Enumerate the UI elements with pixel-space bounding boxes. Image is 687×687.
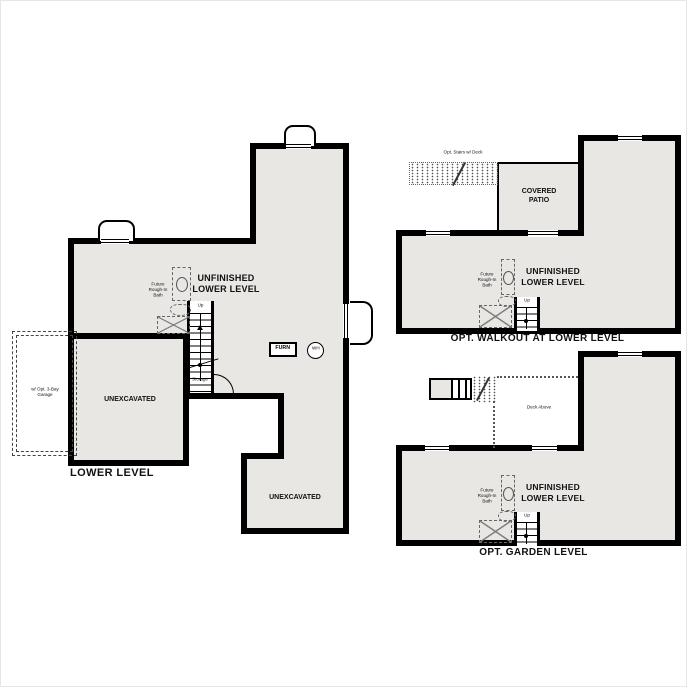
opt-garage-outline: w/ Opt. 3-Bay Garage: [12, 331, 77, 456]
stairs: Up: [514, 512, 540, 546]
deck-outline-dotted: [493, 401, 495, 448]
room-label-unfinished: UNFINISHED LOWER LEVEL: [512, 266, 594, 287]
water-heater: WH: [307, 342, 324, 359]
window: [426, 230, 450, 236]
plan-title-garden: OPT. GARDEN LEVEL: [411, 547, 656, 558]
room-label-unexcavated-lower: UNEXCAVATED: [255, 494, 335, 503]
future-tub-icon: [479, 520, 512, 543]
stair-arrow-icon: [197, 325, 203, 330]
window: [618, 351, 642, 357]
floorplan-sheet: Up Storage Future Rough-In Bath FURN WH …: [0, 0, 687, 687]
covered-patio-label: COVERED PATIO: [513, 188, 565, 205]
deck-above-label: Deck Above: [526, 405, 552, 411]
exterior-wall: [250, 143, 256, 244]
exterior-wall: [68, 238, 256, 244]
exterior-wall: [675, 351, 681, 546]
room-label-unfinished: UNFINISHED LOWER LEVEL: [185, 273, 267, 295]
exterior-wall: [241, 528, 349, 534]
future-tub-icon: [157, 316, 190, 334]
exterior-wall: [578, 351, 584, 451]
furnace-box: FURN: [269, 342, 297, 357]
future-bath-label: Future Rough-In Bath: [476, 488, 498, 505]
window: [101, 238, 129, 244]
exterior-wall: [186, 393, 284, 399]
opt-deck-stairs: [409, 162, 498, 185]
opt-garage-label: w/ Opt. 3-Bay Garage: [29, 387, 60, 398]
stair-direction-line: [526, 522, 527, 544]
patio-wall: [497, 162, 582, 164]
future-sink-icon: [170, 304, 191, 316]
window: [618, 135, 642, 141]
stairs: Up: [514, 297, 540, 331]
exterior-wall: [278, 393, 284, 459]
stair-break-line: [452, 162, 466, 186]
future-bath-label: Future Rough-In Bath: [146, 282, 169, 299]
exterior-wall: [241, 453, 247, 534]
opt-deck-stairs-label: Opt. Stairs w/ Deck: [434, 150, 493, 156]
stairs-up-label: Up: [521, 513, 534, 519]
plan-title-lower-level: LOWER LEVEL: [70, 467, 154, 479]
future-bath-label: Future Rough-In Bath: [476, 272, 498, 289]
stairs-up-label: Up: [194, 303, 208, 309]
exterior-wall: [241, 453, 284, 459]
stair-arrow-icon: [524, 319, 528, 323]
exterior-wall: [396, 445, 402, 546]
window: [425, 445, 449, 451]
floor-area: [253, 146, 346, 246]
exterior-wall: [675, 135, 681, 334]
garden-stair-dashed: [472, 376, 496, 403]
room-label-unfinished: UNFINISHED LOWER LEVEL: [512, 482, 594, 503]
stair-direction-line: [526, 307, 527, 329]
deck-outline-dotted: [497, 376, 578, 378]
exterior-wall: [68, 460, 189, 466]
exterior-wall: [343, 143, 349, 534]
future-tub-icon: [479, 305, 512, 328]
stair-direction-line: [200, 313, 201, 381]
stair-break-line: [476, 377, 490, 401]
window: [286, 143, 311, 149]
room-label-unexcavated-left: UNEXCAVATED: [90, 396, 170, 405]
stairs-up-label: Up: [521, 298, 534, 304]
window-well: [350, 301, 373, 345]
garden-stair-landing: [429, 378, 453, 400]
exterior-wall: [578, 135, 584, 233]
window: [532, 445, 557, 451]
window: [343, 304, 349, 338]
plan-title-walkout: OPT. WALKOUT AT LOWER LEVEL: [415, 333, 660, 344]
stair-arrow-icon: [524, 534, 528, 538]
furnace-label: FURN: [276, 345, 291, 351]
patio-door: [528, 230, 558, 237]
storage-label: Storage: [190, 377, 210, 383]
water-heater-label: WH: [312, 346, 320, 352]
garden-stair-treads: [451, 378, 472, 400]
exterior-wall: [396, 230, 402, 334]
